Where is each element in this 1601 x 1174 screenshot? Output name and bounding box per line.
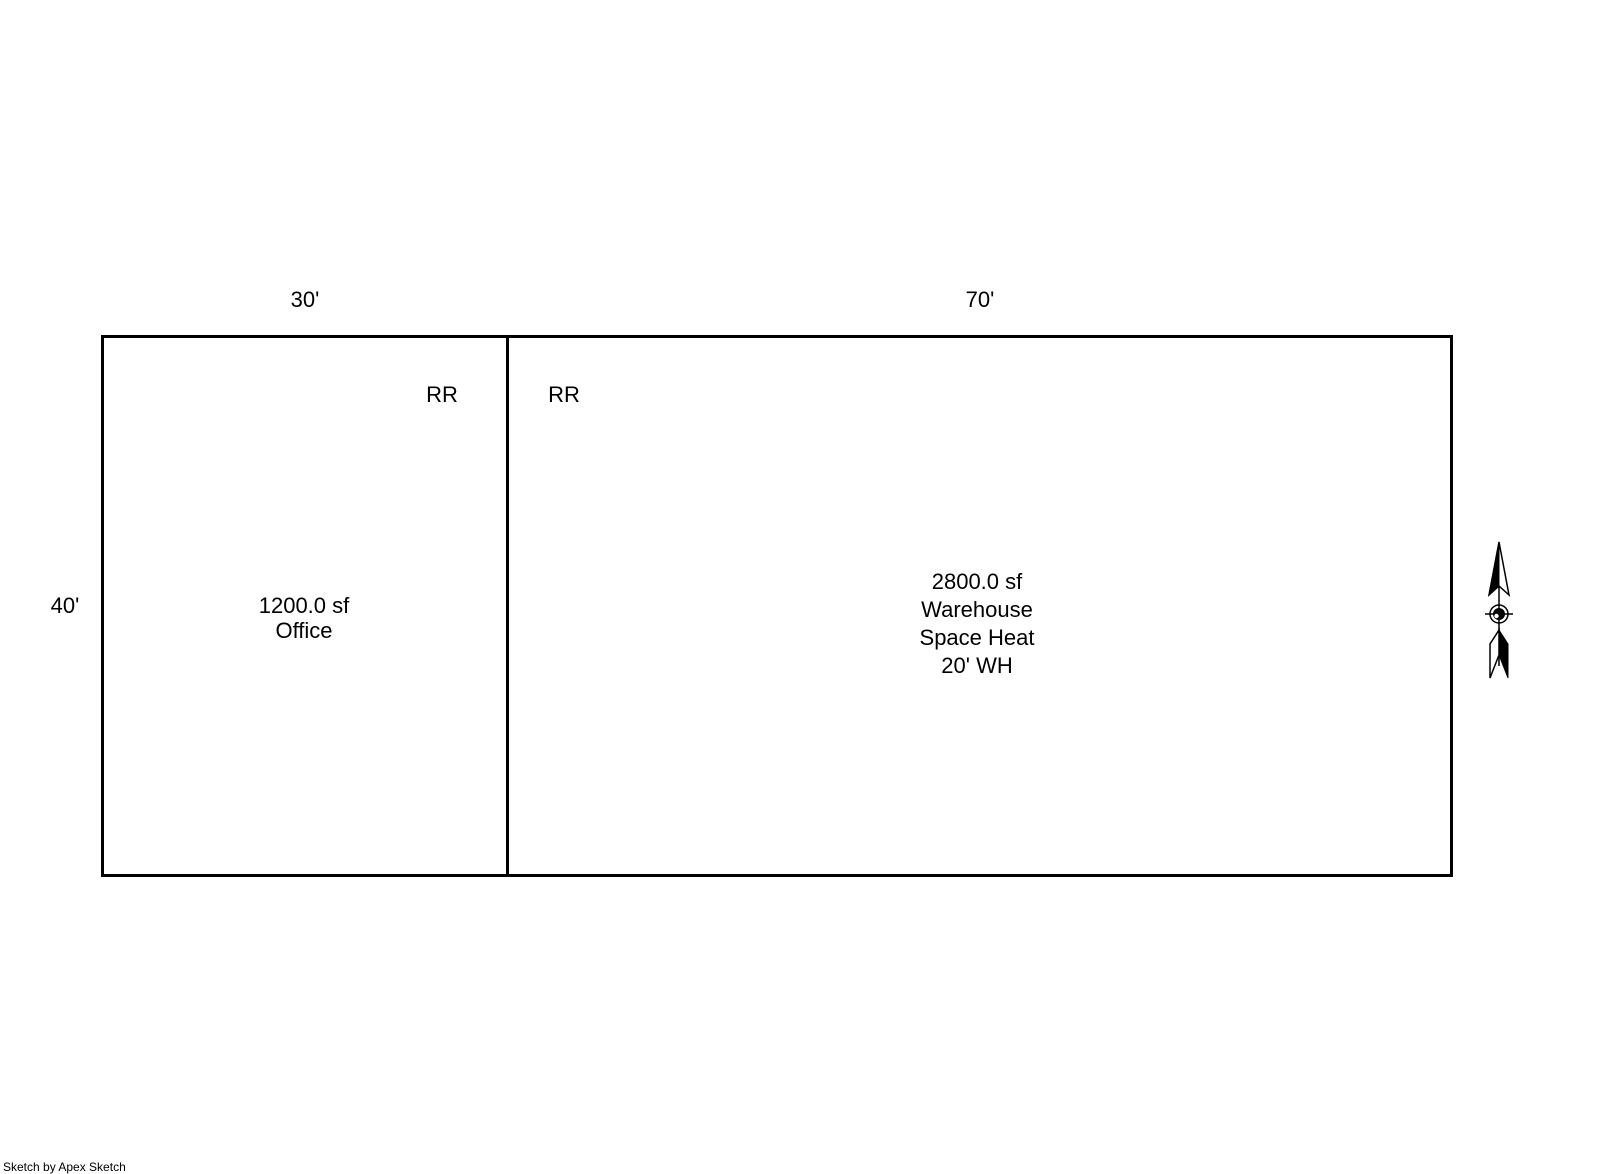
warehouse-name: Warehouse	[920, 596, 1035, 624]
office-square-footage: 1200.0 sf	[259, 593, 350, 618]
office-area-block: 1200.0 sf Office	[259, 593, 350, 643]
warehouse-width-dimension: 70'	[966, 288, 995, 312]
north-arrow-icon	[1477, 541, 1521, 681]
office-height-dimension: 40'	[51, 594, 80, 618]
warehouse-area-block: 2800.0 sf Warehouse Space Heat 20' WH	[920, 568, 1035, 680]
warehouse-restroom-label: RR	[548, 383, 580, 407]
credit-text: Sketch by Apex Sketch	[3, 1161, 126, 1173]
warehouse-wall-height: 20' WH	[920, 652, 1035, 680]
office-restroom-label: RR	[426, 383, 458, 407]
warehouse-square-footage: 2800.0 sf	[920, 568, 1035, 596]
office-warehouse-partition	[506, 335, 509, 877]
warehouse-heat-type: Space Heat	[920, 624, 1035, 652]
apex-sketch-page: 30' 70' 40' RR RR 1200.0 sf Office 2800.…	[0, 0, 1601, 1174]
office-width-dimension: 30'	[291, 288, 320, 312]
office-name: Office	[259, 618, 350, 643]
